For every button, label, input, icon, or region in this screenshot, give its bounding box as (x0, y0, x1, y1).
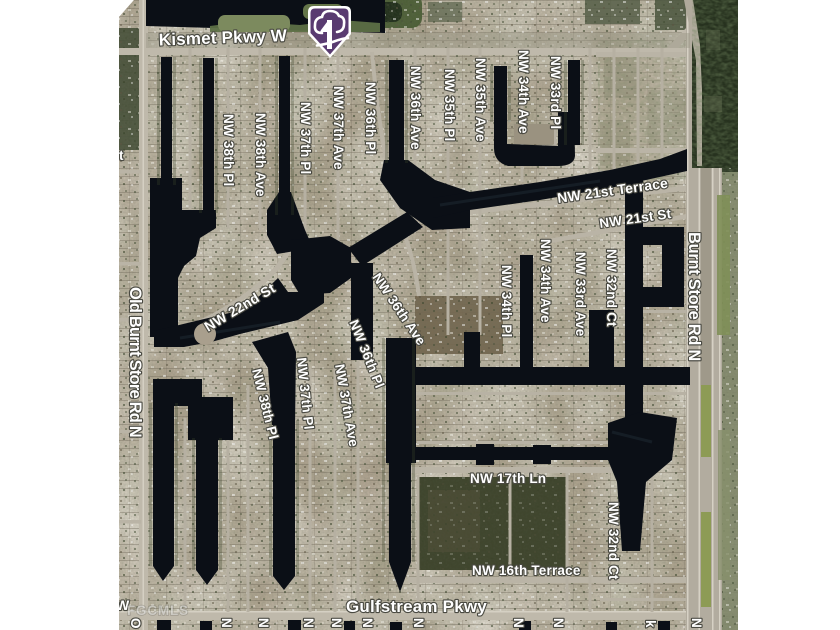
svg-text:NW 32nd Ct: NW 32nd Ct (604, 249, 619, 327)
svg-text:FGCMLS: FGCMLS (127, 603, 189, 618)
svg-text:NW 37th Ave: NW 37th Ave (331, 86, 346, 170)
svg-text:Gulfstream Pkwy: Gulfstream Pkwy (346, 597, 487, 616)
svg-text:NW 17th Ln: NW 17th Ln (470, 471, 546, 486)
svg-text:N: N (551, 618, 566, 628)
svg-text:t: t (119, 148, 124, 163)
svg-text:N: N (329, 618, 344, 628)
svg-text:NW 32nd Ct: NW 32nd Ct (606, 502, 621, 580)
svg-text:N: N (411, 618, 426, 628)
svg-text:O: O (128, 618, 143, 629)
svg-text:NW 34th Ave: NW 34th Ave (516, 50, 531, 134)
svg-text:N: N (511, 618, 526, 628)
svg-text:NW 34th Pl: NW 34th Pl (499, 265, 514, 338)
svg-text:NW 38th Ave: NW 38th Ave (253, 113, 268, 197)
svg-text:N: N (256, 618, 271, 628)
svg-text:Old Burnt Store Rd N: Old Burnt Store Rd N (126, 287, 144, 437)
svg-text:NW 37th Pl: NW 37th Pl (298, 102, 313, 175)
svg-text:k: k (643, 620, 658, 628)
svg-text:NW 36th Pl: NW 36th Pl (363, 82, 378, 155)
svg-text:NW 35th Pl: NW 35th Pl (442, 69, 457, 142)
svg-text:NW 33rd Pl: NW 33rd Pl (548, 56, 563, 129)
svg-text:NW 35th Ave: NW 35th Ave (473, 58, 488, 142)
svg-text:N: N (360, 618, 375, 628)
svg-text:N: N (219, 618, 234, 628)
svg-text:NW 38th Pl: NW 38th Pl (221, 114, 236, 187)
svg-text:N: N (689, 618, 704, 628)
svg-text:Burnt Store Rd N: Burnt Store Rd N (685, 232, 703, 361)
svg-text:NW 36th Ave: NW 36th Ave (408, 66, 423, 150)
svg-text:NW 33rd Ave: NW 33rd Ave (573, 252, 588, 337)
svg-text:N: N (301, 618, 316, 628)
svg-text:NW 16th Terrace: NW 16th Terrace (472, 563, 581, 578)
svg-text:NW 34th Ave: NW 34th Ave (538, 239, 553, 323)
